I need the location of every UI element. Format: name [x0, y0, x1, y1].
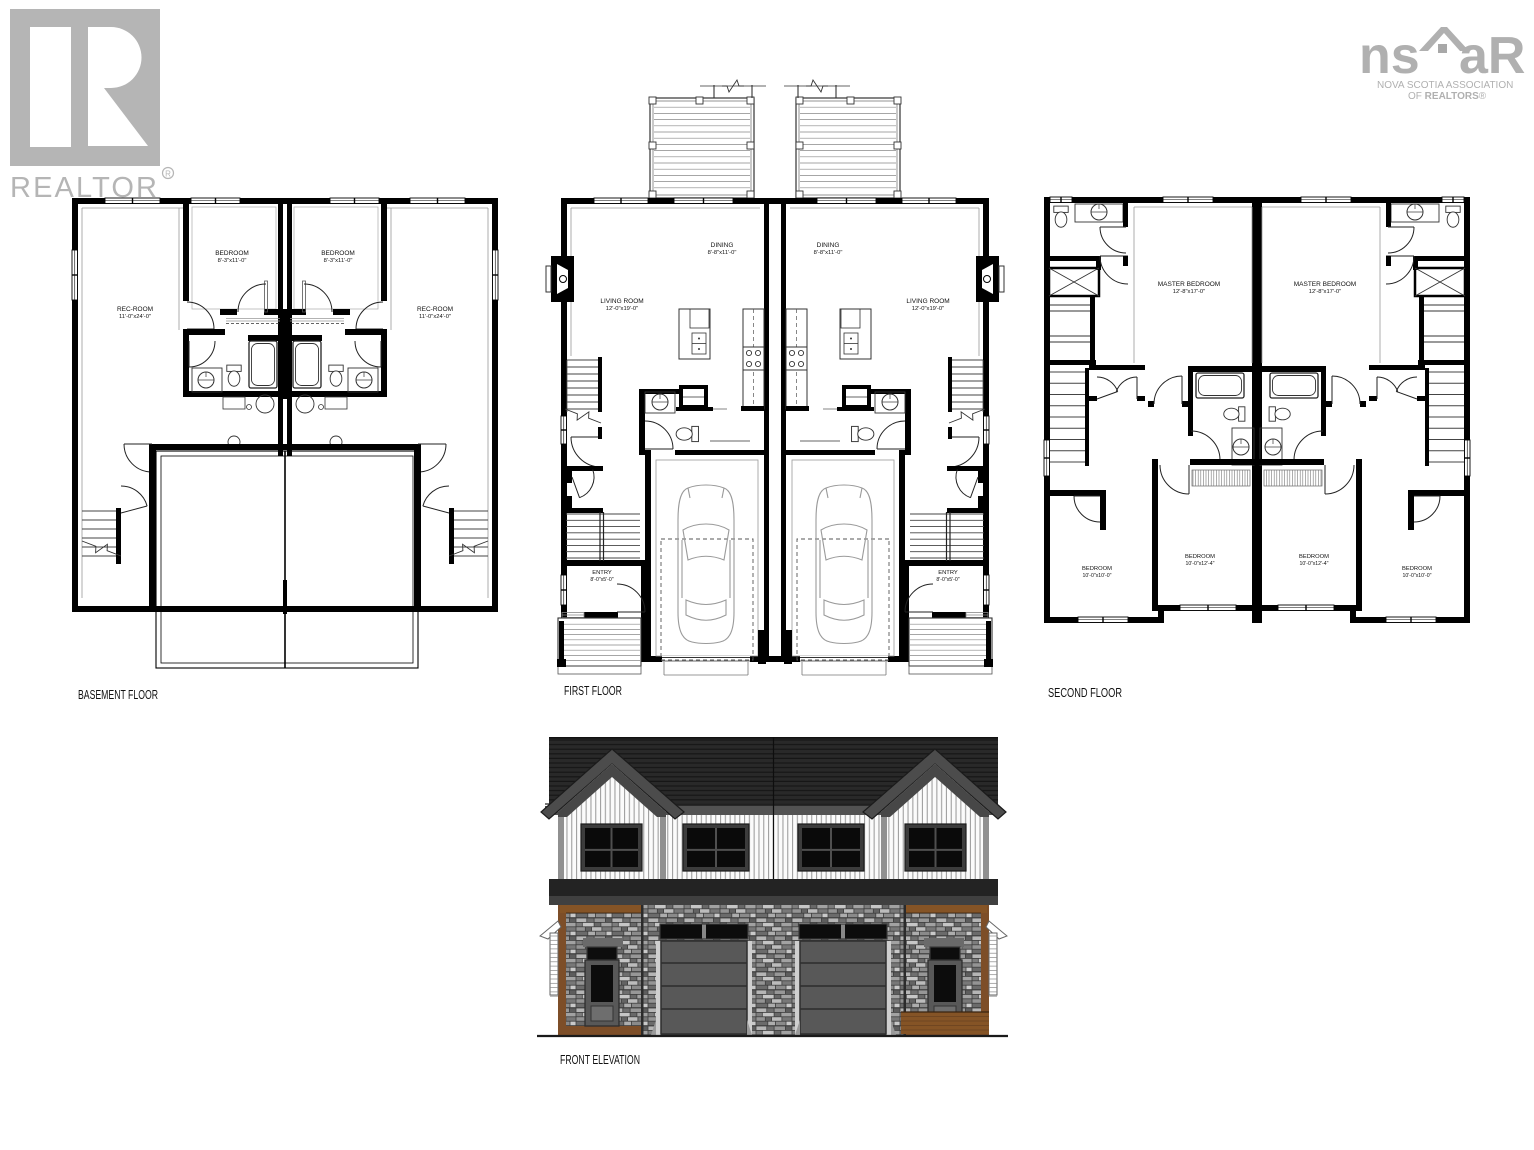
svg-text:FRONT ELEVATION: FRONT ELEVATION	[560, 1053, 640, 1067]
svg-text:8'-0"x5'-0": 8'-0"x5'-0"	[936, 577, 959, 583]
svg-text:SECOND FLOOR: SECOND FLOOR	[1048, 686, 1122, 700]
svg-text:10'-0"x10'-0": 10'-0"x10'-0"	[1402, 573, 1431, 579]
svg-text:NOVA SCOTIA ASSOCIATION: NOVA SCOTIA ASSOCIATION	[1377, 80, 1513, 91]
svg-text:ENTRY: ENTRY	[938, 570, 958, 576]
svg-text:8'-8"x11'-0": 8'-8"x11'-0"	[708, 250, 737, 256]
svg-text:8'-8"x11'-0": 8'-8"x11'-0"	[814, 250, 843, 256]
svg-text:MASTER BEDROOM: MASTER BEDROOM	[1158, 281, 1220, 288]
svg-text:BEDROOM: BEDROOM	[1082, 566, 1112, 572]
svg-text:REC-ROOM: REC-ROOM	[117, 306, 153, 313]
svg-text:11'-0"x24'-0": 11'-0"x24'-0"	[119, 314, 151, 320]
svg-text:10'-0"x12'-4": 10'-0"x12'-4"	[1185, 561, 1214, 567]
svg-text:BASEMENT FLOOR: BASEMENT FLOOR	[78, 688, 158, 702]
svg-text:12'-8"x17'-0": 12'-8"x17'-0"	[1309, 289, 1341, 295]
svg-text:BEDROOM: BEDROOM	[215, 250, 249, 257]
svg-text:DINING: DINING	[711, 242, 734, 249]
svg-text:12'-8"x17'-0": 12'-8"x17'-0"	[1173, 289, 1205, 295]
svg-text:BEDROOM: BEDROOM	[1185, 554, 1215, 560]
svg-text:aR: aR	[1459, 27, 1525, 85]
svg-text:OF REALTORS®: OF REALTORS®	[1408, 91, 1487, 102]
svg-text:LIVING ROOM: LIVING ROOM	[906, 298, 949, 305]
svg-text:12'-0"x19'-0": 12'-0"x19'-0"	[912, 306, 944, 312]
svg-text:MASTER BEDROOM: MASTER BEDROOM	[1294, 281, 1356, 288]
svg-text:FIRST FLOOR: FIRST FLOOR	[564, 684, 622, 698]
svg-text:REC-ROOM: REC-ROOM	[417, 306, 453, 313]
svg-text:DINING: DINING	[817, 242, 840, 249]
svg-text:BEDROOM: BEDROOM	[321, 250, 355, 257]
svg-text:BEDROOM: BEDROOM	[1402, 566, 1432, 572]
svg-text:ENTRY: ENTRY	[592, 570, 612, 576]
svg-text:ns: ns	[1359, 27, 1420, 85]
svg-text:10'-0"x12'-4": 10'-0"x12'-4"	[1299, 561, 1328, 567]
svg-text:8'-0"x5'-0": 8'-0"x5'-0"	[590, 577, 613, 583]
svg-text:8'-3"x11'-0": 8'-3"x11'-0"	[324, 258, 353, 264]
svg-text:8'-3"x11'-0": 8'-3"x11'-0"	[218, 258, 247, 264]
svg-text:12'-0"x19'-0": 12'-0"x19'-0"	[606, 306, 638, 312]
svg-text:LIVING ROOM: LIVING ROOM	[600, 298, 643, 305]
svg-text:10'-0"x10'-0": 10'-0"x10'-0"	[1082, 573, 1111, 579]
svg-text:BEDROOM: BEDROOM	[1299, 554, 1329, 560]
svg-text:R: R	[165, 170, 171, 179]
svg-text:11'-0"x24'-0": 11'-0"x24'-0"	[419, 314, 451, 320]
